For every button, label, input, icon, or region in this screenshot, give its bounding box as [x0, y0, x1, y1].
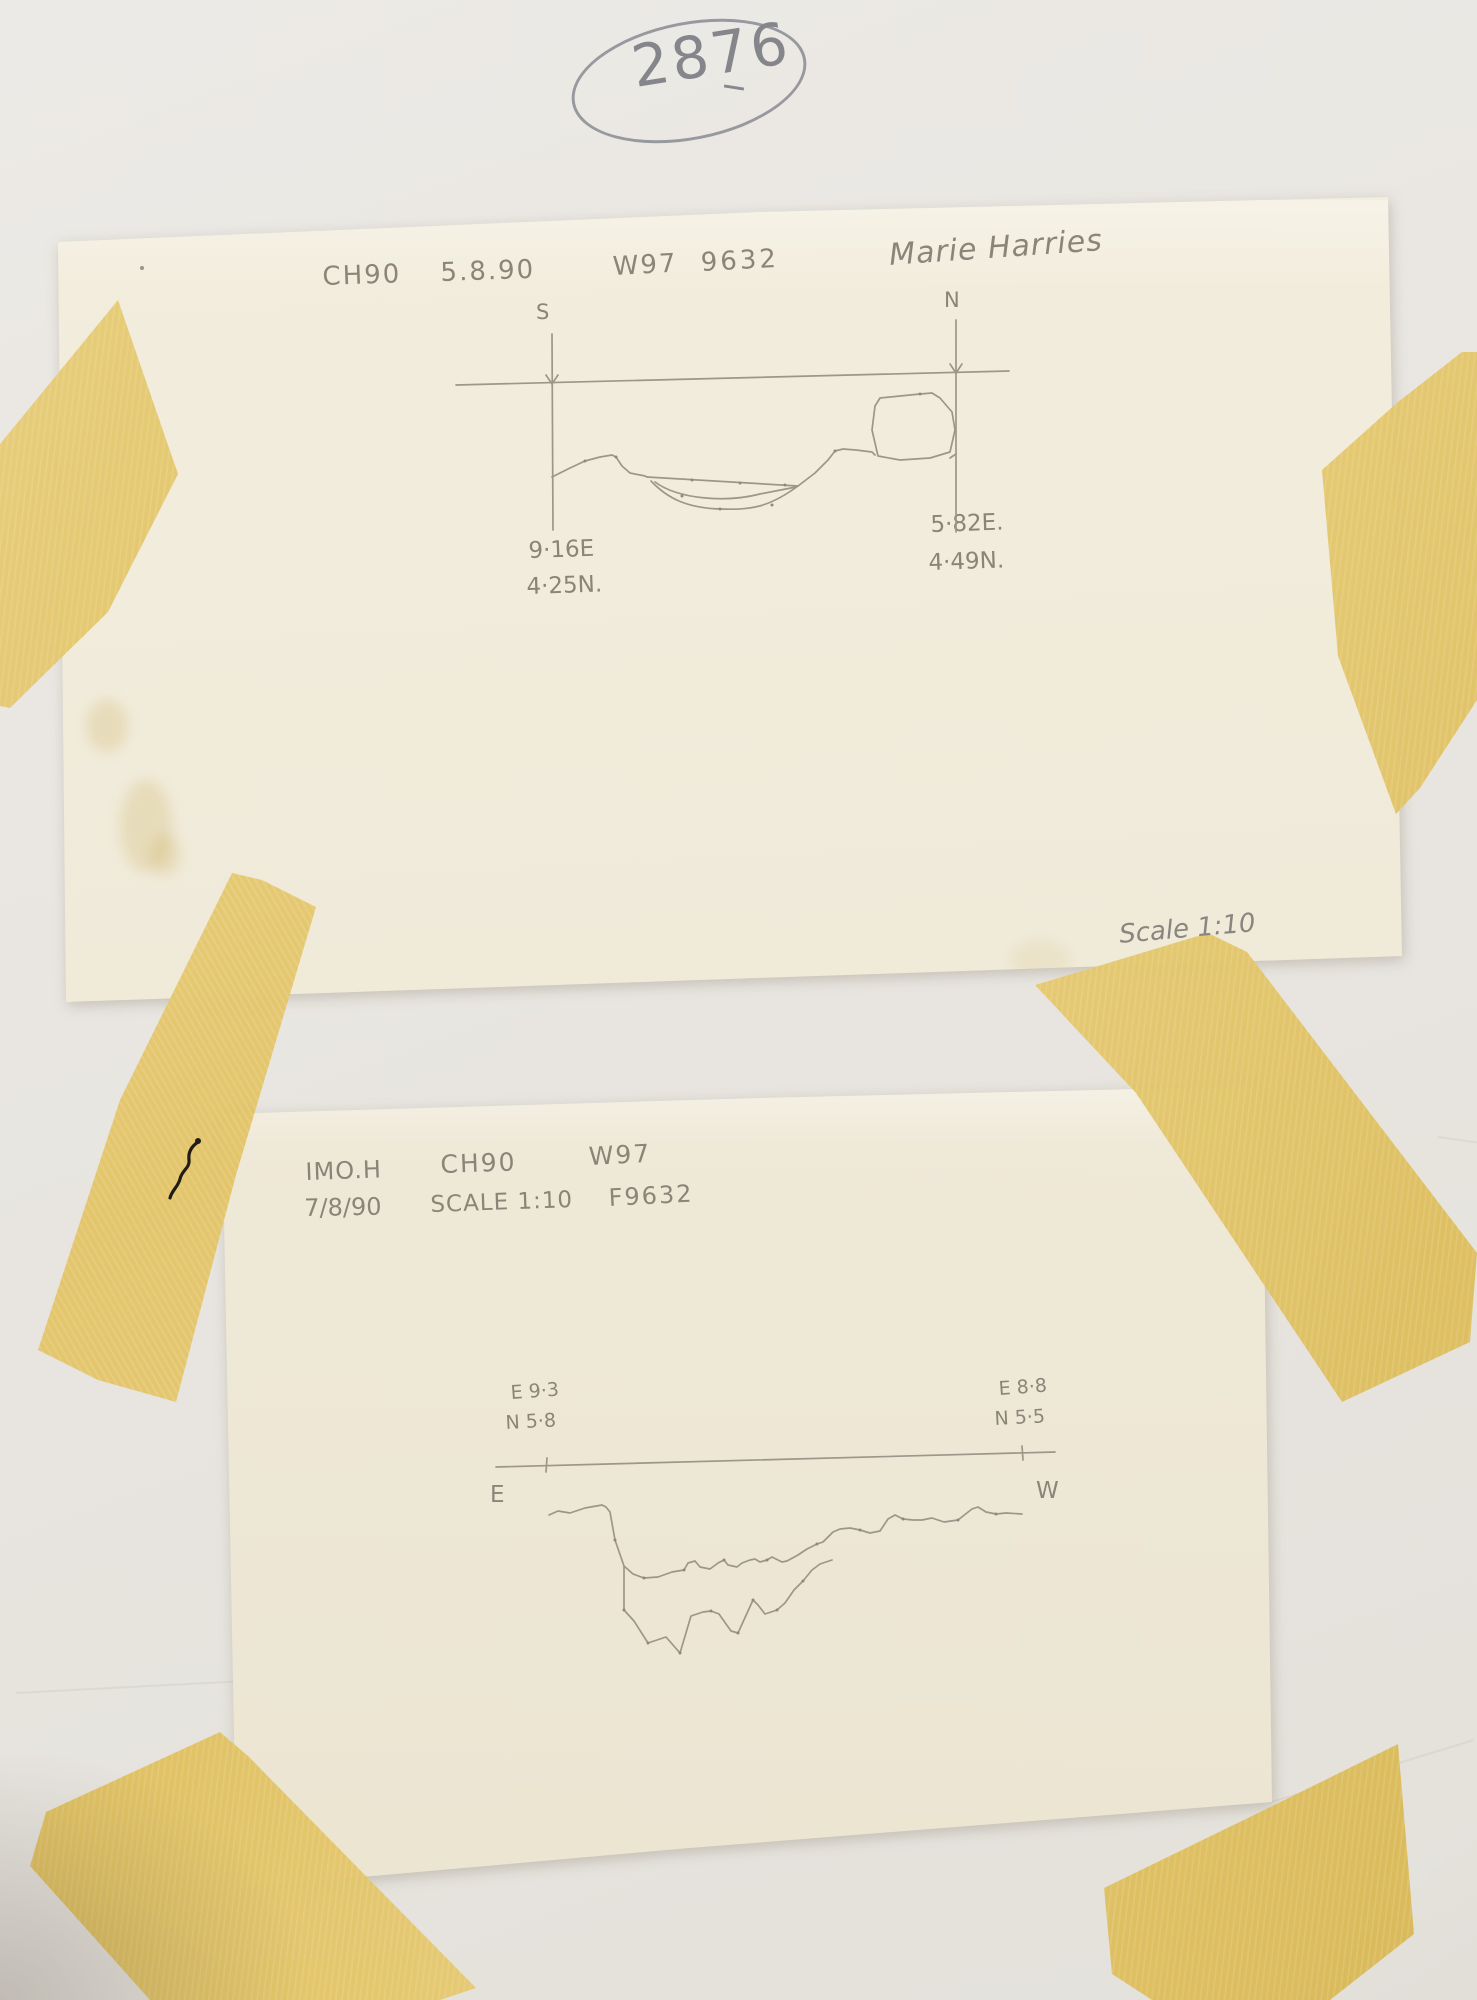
tape-bottom-right [0, 0, 1477, 2000]
photographed-archive-page: CH90 5.8.90 W97 9632 Marie Harries S N 9… [0, 0, 1477, 2000]
ink-squiggle-mark [158, 1132, 218, 1216]
